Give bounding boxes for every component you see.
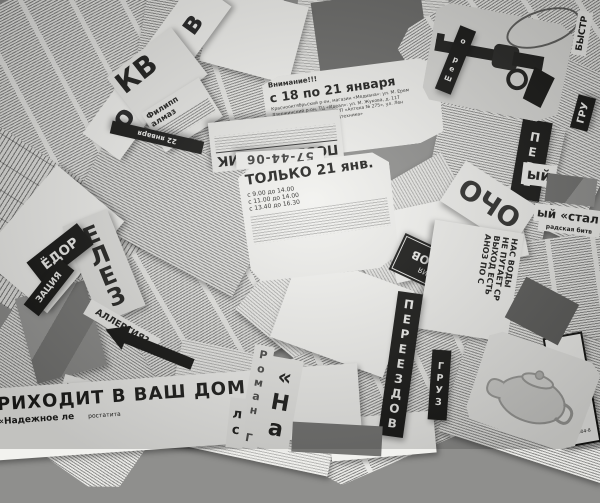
only21-clipping: ТОЛЬКО 21 янв. с 9.00 до 14.00 с 11.00 д… xyxy=(237,148,404,286)
rostatita-text: ростатита xyxy=(88,411,121,420)
vody-clipping: НАС ВОДЫ НЕ ПУГАЕТ СР ВЫХОД ЕСТЬ АНОЗ ПО… xyxy=(418,220,524,343)
newspaper-collage-photo: осква в КВ Филипп алмаз 22 января Вниман… xyxy=(0,0,600,449)
photo-fragment xyxy=(544,173,597,207)
dark-gap xyxy=(291,422,382,457)
gru-text: ГРУ xyxy=(575,101,591,125)
ls-text: лс xyxy=(227,406,245,439)
gruz-text: ГРУЗ xyxy=(432,361,446,410)
